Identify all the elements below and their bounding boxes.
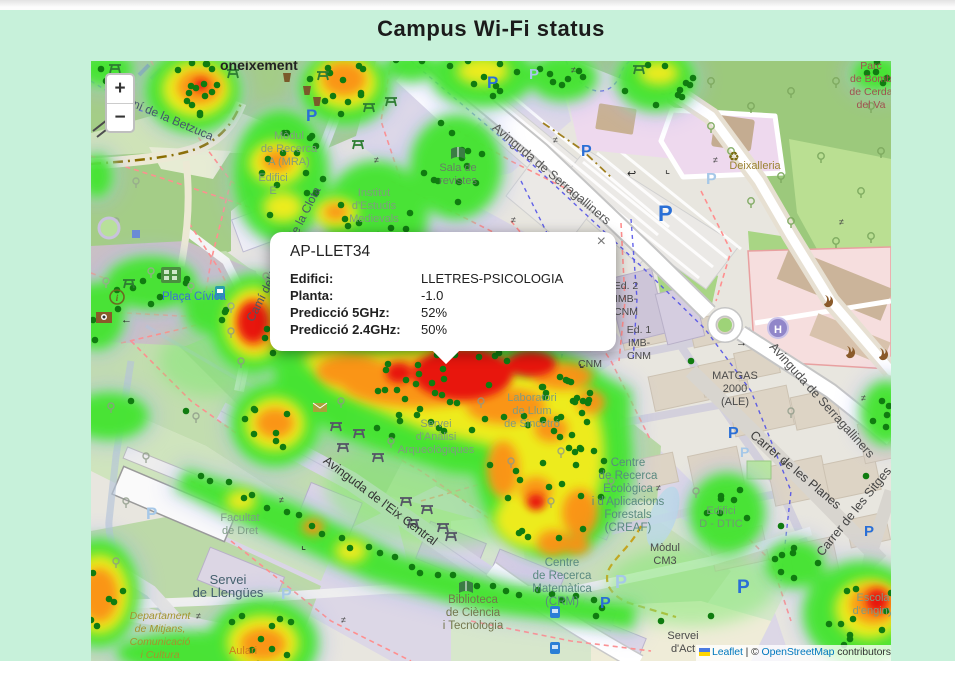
- svg-text:Medievals: Medievals: [349, 213, 399, 225]
- svg-text:P: P: [581, 143, 592, 160]
- svg-text:Arqueològiques: Arqueològiques: [398, 444, 475, 456]
- svg-text:→: →: [736, 337, 747, 349]
- svg-text:del Va: del Va: [857, 99, 886, 111]
- svg-text:Forestals: Forestals: [604, 509, 652, 521]
- svg-text:d'enginy: d'enginy: [853, 605, 891, 617]
- svg-text:≠: ≠: [196, 611, 201, 621]
- svg-text:⌞: ⌞: [665, 164, 670, 176]
- svg-text:≠: ≠: [861, 393, 866, 403]
- svg-text:P: P: [658, 201, 673, 226]
- svg-text:de Recerca: de Recerca: [261, 143, 318, 155]
- svg-text:≠: ≠: [713, 155, 718, 165]
- svg-text:Ed. 1: Ed. 1: [627, 324, 652, 336]
- svg-text:Mòdul: Mòdul: [650, 542, 680, 554]
- svg-text:Matemàtica: Matemàtica: [532, 583, 592, 595]
- svg-text:oneixement: oneixement: [220, 61, 298, 73]
- svg-text:Aulari: Aulari: [229, 645, 257, 657]
- svg-text:de Llengües: de Llengües: [193, 585, 264, 600]
- svg-text:P: P: [529, 66, 539, 83]
- svg-text:MATGAS: MATGAS: [712, 370, 758, 382]
- svg-text:Ecològica: Ecològica: [603, 483, 653, 495]
- svg-text:←: ←: [121, 314, 132, 326]
- svg-text:d'Anàlisi: d'Anàlisi: [416, 431, 457, 443]
- svg-text:P: P: [737, 577, 750, 598]
- svg-text:2000: 2000: [723, 383, 747, 395]
- svg-text:CM3: CM3: [653, 555, 676, 567]
- svg-text:P: P: [146, 504, 157, 523]
- svg-text:Edifici: Edifici: [706, 505, 735, 517]
- svg-text:Sala de: Sala de: [439, 162, 476, 174]
- svg-text:⌞: ⌞: [301, 540, 306, 552]
- svg-text:Mòdul: Mòdul: [274, 130, 304, 142]
- svg-text:(CREAF): (CREAF): [605, 522, 652, 534]
- svg-text:de Bomb: de Bomb: [850, 73, 891, 85]
- svg-text:CNM: CNM: [614, 306, 638, 318]
- svg-text:Deixalleria: Deixalleria: [729, 160, 781, 172]
- svg-text:≠: ≠: [553, 135, 558, 145]
- svg-text:P: P: [728, 425, 739, 442]
- svg-text:i Cultura: i Cultura: [140, 649, 179, 661]
- svg-text:Institut: Institut: [358, 187, 390, 199]
- svg-text:de Recerca: de Recerca: [599, 470, 658, 482]
- svg-text:Servei: Servei: [420, 418, 451, 430]
- svg-text:de Llum: de Llum: [512, 405, 551, 417]
- svg-text:CNM: CNM: [578, 358, 602, 370]
- svg-text:≠: ≠: [279, 495, 284, 505]
- svg-text:H: H: [774, 324, 782, 336]
- svg-text:de Recerca: de Recerca: [533, 570, 592, 582]
- svg-text:↩: ↩: [627, 168, 636, 180]
- svg-text:Departament: Departament: [130, 610, 192, 622]
- svg-text:P: P: [740, 444, 749, 460]
- svg-text:Centre: Centre: [545, 557, 580, 569]
- svg-text:Biblioteca: Biblioteca: [448, 594, 498, 606]
- svg-text:revistes: revistes: [439, 175, 477, 187]
- svg-text:d'Act: d'Act: [671, 643, 695, 655]
- svg-text:i d'Aplicacions: i d'Aplicacions: [592, 496, 665, 508]
- svg-text:Edifici: Edifici: [258, 172, 287, 184]
- svg-text:P: P: [615, 572, 627, 592]
- svg-text:IMB-: IMB-: [615, 293, 638, 305]
- svg-text:de Sincotró: de Sincotró: [504, 418, 560, 430]
- svg-text:A (MRA): A (MRA): [268, 156, 310, 168]
- svg-text:Parc: Parc: [860, 61, 882, 72]
- svg-text:de Ciència: de Ciència: [446, 607, 501, 619]
- svg-text:P: P: [306, 106, 317, 125]
- svg-text:de Dret: de Dret: [222, 525, 258, 537]
- svg-text:de Mitjans,: de Mitjans,: [135, 623, 186, 635]
- svg-text:Comunicació: Comunicació: [130, 636, 191, 648]
- svg-text:P: P: [487, 73, 498, 92]
- svg-text:Laboratori: Laboratori: [507, 392, 557, 404]
- svg-text:≠: ≠: [839, 217, 844, 227]
- svg-text:IMB-: IMB-: [628, 337, 651, 349]
- svg-text:Ed. 2: Ed. 2: [614, 280, 639, 292]
- svg-text:Servei: Servei: [667, 630, 698, 642]
- svg-text:≠: ≠: [341, 615, 346, 625]
- svg-text:d'Estudis: d'Estudis: [352, 200, 397, 212]
- svg-text:Escola: Escola: [856, 592, 890, 604]
- svg-text:P: P: [281, 586, 292, 603]
- svg-text:(CRM): (CRM): [545, 596, 579, 608]
- svg-text:P: P: [864, 523, 874, 540]
- svg-text:de Cerda: de Cerda: [849, 86, 891, 98]
- svg-text:≠: ≠: [511, 215, 516, 225]
- svg-text:≠: ≠: [571, 65, 576, 75]
- svg-text:CNM: CNM: [627, 350, 651, 362]
- svg-text:Plaça Cívica: Plaça Cívica: [162, 291, 227, 303]
- svg-text:i Tecnologia: i Tecnologia: [443, 620, 504, 632]
- svg-text:(ALE): (ALE): [721, 396, 749, 408]
- svg-text:E: E: [269, 185, 276, 197]
- svg-text:Facultat: Facultat: [220, 512, 259, 524]
- svg-text:P: P: [600, 595, 611, 612]
- svg-text:≠: ≠: [374, 155, 379, 165]
- svg-text:P: P: [706, 171, 717, 188]
- svg-text:≠: ≠: [656, 483, 661, 493]
- svg-text:Centre: Centre: [611, 457, 646, 469]
- svg-text:D - DTIC: D - DTIC: [699, 518, 742, 530]
